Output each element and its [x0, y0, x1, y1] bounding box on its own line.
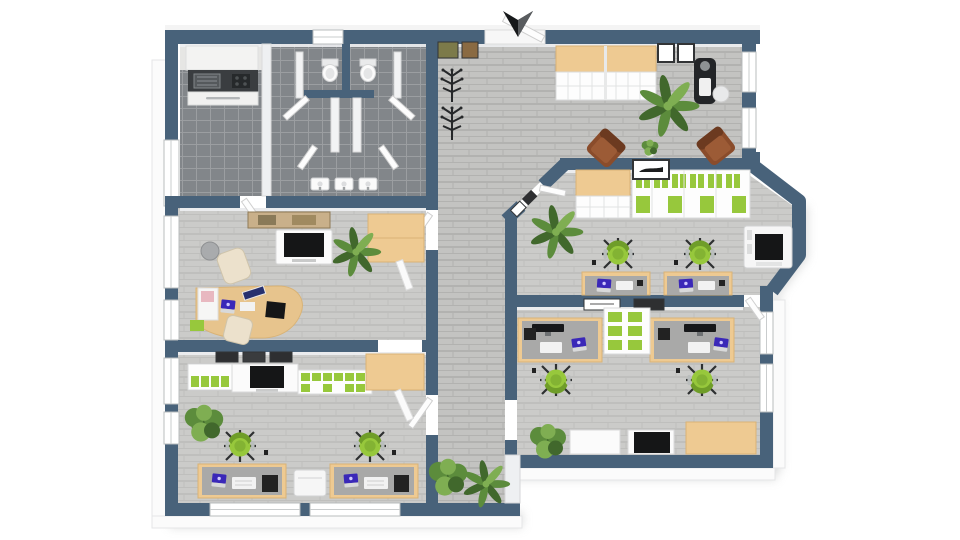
office-right-desk-2 — [664, 272, 732, 295]
wall-corridor-step — [505, 455, 520, 503]
mo-desk-chair — [222, 314, 254, 346]
reception-picture-2 — [678, 44, 694, 62]
wall-top-right — [545, 30, 760, 44]
office-right-chair-2 — [684, 238, 716, 270]
obl-tv-sideboard — [232, 364, 298, 392]
kitchen-sink — [194, 74, 220, 88]
floor-phone-6 — [392, 450, 396, 455]
obr-binder-sideboard — [604, 308, 650, 354]
floor-plan-render — [0, 0, 960, 540]
mo-monitor — [265, 301, 286, 319]
obr-chair-1 — [540, 364, 572, 396]
office-right-wood-cabinet — [576, 170, 630, 218]
mo-paper-tray — [190, 320, 204, 331]
floor-phone-5 — [264, 450, 268, 455]
obl-desk-1 — [198, 464, 286, 498]
vending-machine — [694, 58, 716, 104]
obr-chair-2 — [686, 364, 718, 396]
waste-bin — [713, 86, 729, 102]
hall-picture-2 — [462, 42, 478, 58]
floor-phone-4 — [676, 368, 680, 373]
wall-left-offices-divider-b — [422, 340, 438, 352]
obl-printer — [294, 470, 326, 496]
obl-binder-shelf — [298, 370, 372, 394]
floor-phone-1 — [592, 260, 596, 265]
reception-picture-1 — [658, 44, 674, 62]
obr-tv-cabinet — [628, 430, 674, 454]
kitchen-drawer-handle — [206, 97, 240, 99]
obr-desk-1 — [518, 318, 602, 362]
mo-tv-sideboard — [276, 230, 332, 264]
wall-right-offices-divider-b — [764, 295, 773, 307]
stall-front-left — [331, 98, 339, 152]
stall-partition-left — [296, 52, 303, 98]
hall-picture-1 — [438, 42, 458, 58]
mo-pink-papers — [201, 291, 214, 302]
mo-laptop — [220, 299, 235, 313]
toilet-left — [322, 59, 338, 82]
mo-papers — [240, 302, 255, 311]
wall-corridor-a — [426, 44, 438, 210]
obr-storage-cabinet — [570, 430, 620, 454]
floor-plan-canvas — [0, 0, 960, 540]
wall-corridor-c — [426, 352, 438, 395]
kitchen-upper-cabinets — [186, 46, 258, 70]
stall-front-right — [353, 98, 361, 152]
sink-row — [311, 178, 377, 190]
mo-panorama-picture — [248, 212, 330, 228]
obl-desk-2 — [330, 464, 418, 498]
obr-wood-cabinet — [686, 422, 756, 454]
obl-pictures — [216, 352, 292, 362]
wall-left-offices-divider-a — [178, 340, 378, 352]
obr-desk-2 — [650, 318, 734, 362]
floor-phone-2 — [674, 260, 678, 265]
copier — [744, 226, 792, 268]
wall-corridor-b — [426, 250, 438, 340]
wall-office-right-left-a — [505, 218, 517, 295]
obl-chair-1 — [224, 430, 256, 462]
office-right-picture — [633, 160, 669, 179]
wall-office-right-left-b — [505, 307, 517, 400]
wall-mid-h-left-a — [165, 196, 240, 208]
wall-mid-h-left-b — [266, 196, 438, 208]
mo-ball-chair — [201, 242, 219, 260]
obl-sideboard-left — [188, 364, 232, 390]
office-right-chair-1 — [602, 238, 634, 270]
toilet-right — [360, 59, 376, 82]
office-right-desk-1 — [582, 272, 650, 295]
obl-chair-2 — [354, 430, 386, 462]
wall-kitchen-wc-divider — [262, 44, 271, 196]
wall-wc-center-v — [342, 44, 350, 96]
stall-partition-right — [394, 52, 401, 98]
room-kitchen — [186, 46, 258, 105]
kitchen-cooktop — [232, 74, 250, 88]
wall-office-right-left-c — [505, 440, 517, 455]
wall-wc-center-h — [304, 90, 374, 98]
wall-right-offices-divider-a — [505, 295, 744, 307]
floor-phone-3 — [532, 368, 536, 373]
